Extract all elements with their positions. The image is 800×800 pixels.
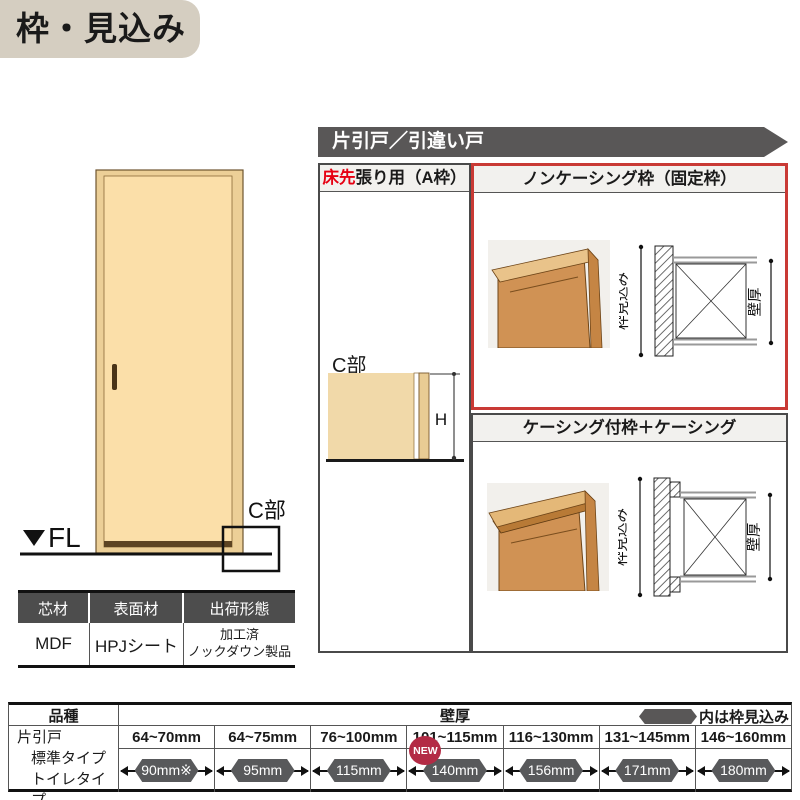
frame-depth-badge: 115mm	[327, 759, 391, 782]
range-header: 64~75mm	[215, 726, 310, 749]
h-label: H	[435, 410, 447, 429]
page: 枠・見込み FL C部 芯材 表面材 出荷形態 MDF HPJシート 加工済	[0, 0, 800, 800]
legend-hexagon-icon	[639, 709, 697, 724]
table-column: 64~70mm 90mm※	[119, 726, 215, 792]
arrow-right-icon	[590, 766, 598, 776]
legend: 内は枠見込み	[639, 706, 789, 727]
section-casing-frame: ケーシング付枠＋ケーシング 枠見込み	[471, 413, 788, 653]
dim-dot	[769, 341, 773, 345]
table-body-row: 片引戸 標準タイプ トイレタイプ 64~70mm 90mm※ 64~75mm	[9, 726, 791, 792]
spec-table-header-row: 芯材 表面材 出荷形態	[18, 593, 295, 623]
arrow-left-icon	[697, 766, 705, 776]
arrow-left-icon	[505, 766, 513, 776]
badge-cell: NEW 140mm	[407, 749, 502, 792]
table-column: 101~115mm NEW 140mm	[407, 726, 503, 792]
door-handle	[112, 364, 117, 390]
range-header: 64~70mm	[119, 726, 214, 749]
dim-dot	[769, 259, 773, 263]
dim-dot	[452, 456, 456, 460]
frame-depth-badge: 156mm	[519, 759, 583, 782]
table-column: 64~75mm 95mm	[215, 726, 311, 792]
casing-cap-bottom	[670, 577, 680, 592]
floor-first-em: 床先	[323, 169, 356, 187]
noncasing-photo	[488, 240, 610, 348]
wall-thickness-label: 壁厚	[746, 523, 763, 552]
door-panel	[104, 176, 232, 547]
wall-header-cell: 壁厚 内は枠見込み	[119, 705, 791, 725]
spec-header-surface: 表面材	[90, 593, 184, 623]
section-floor-first-header: 床先張り用（A枠）	[320, 165, 469, 192]
frame-depth-badge: 95mm	[231, 759, 295, 782]
badge-cell: 115mm	[311, 749, 406, 792]
row-label-line1: 片引戸	[9, 727, 118, 748]
spec-value-surface: HPJシート	[90, 623, 184, 665]
arrow-right-icon	[301, 766, 309, 776]
frame-depth-label: 枠見込み	[619, 272, 631, 330]
frame-depth-badge: 180mm	[711, 759, 775, 782]
dim-dot	[768, 493, 772, 497]
fl-label: FL	[48, 522, 81, 553]
spec-value-shipping-line2: ノックダウン製品	[188, 644, 291, 661]
spec-value-shipping: 加工済 ノックダウン製品	[184, 623, 295, 665]
badge-cell: 90mm※	[119, 749, 214, 792]
arrow-right-icon	[205, 766, 213, 776]
door-section-frame	[419, 373, 429, 459]
legend-text: 内は枠見込み	[699, 706, 789, 727]
row-label-line3: トイレタイプ	[9, 769, 118, 800]
dim-dot	[639, 353, 643, 357]
page-title: 枠・見込み	[0, 0, 200, 58]
spec-header-shipping: 出荷形態	[184, 593, 295, 623]
noncasing-header: ノンケーシング枠（固定枠）	[474, 166, 785, 193]
spec-table: 芯材 表面材 出荷形態 MDF HPJシート 加工済 ノックダウン製品	[18, 590, 295, 668]
arrow-right-icon	[686, 766, 694, 776]
kind-header: 品種	[9, 705, 119, 725]
noncasing-diagram: 枠見込み 壁厚	[619, 231, 784, 361]
badge-cell: 171mm	[600, 749, 695, 792]
badge-cell: 95mm	[215, 749, 310, 792]
dim-dot	[638, 477, 642, 481]
spec-value-shipping-line1: 加工済	[220, 627, 259, 644]
arrow-right-icon	[494, 766, 502, 776]
door-section-gap	[414, 373, 419, 459]
frame-depth-badge: 171mm	[615, 759, 679, 782]
section-noncasing-frame: ノンケーシング枠（固定枠） 枠見込み	[471, 163, 788, 410]
dim-dot	[639, 245, 643, 249]
dim-dot	[638, 593, 642, 597]
fl-triangle-icon	[23, 530, 45, 546]
table-columns: 64~70mm 90mm※ 64~75mm 95mm	[119, 726, 791, 792]
table-top-row: 品種 壁厚 内は枠見込み	[9, 705, 791, 726]
section-floor-first-a-frame: 床先張り用（A枠） C部 H	[318, 163, 471, 653]
range-header: 146~160mm	[696, 726, 791, 749]
table-column: 76~100mm 115mm	[311, 726, 407, 792]
dim-dot	[768, 577, 772, 581]
range-header: 116~130mm	[504, 726, 599, 749]
casing-diagram: 枠見込み 壁厚	[618, 467, 783, 607]
dim-dot	[452, 372, 456, 376]
spec-header-core: 芯材	[18, 593, 90, 623]
c-part-diagram: H	[322, 369, 468, 469]
casing-cap-top	[670, 482, 680, 497]
range-header: 76~100mm	[311, 726, 406, 749]
arrow-right-icon	[782, 766, 790, 776]
table-column: 146~160mm 180mm	[696, 726, 791, 792]
table-column: 131~145mm 171mm	[600, 726, 696, 792]
range-header: 131~145mm	[600, 726, 695, 749]
spec-value-core: MDF	[18, 623, 90, 665]
floor-first-rest: 張り用（A枠）	[356, 169, 467, 187]
arrow-right-icon	[397, 766, 405, 776]
door-bottom-rail	[104, 541, 232, 547]
casing-photo	[487, 483, 609, 591]
table-column: 116~130mm 156mm	[504, 726, 600, 792]
wall-thickness-label: 壁厚	[747, 288, 764, 317]
arrow-left-icon	[120, 766, 128, 776]
spec-table-value-row: MDF HPJシート 加工済 ノックダウン製品	[18, 623, 295, 665]
door-elevation-figure: FL C部	[10, 168, 310, 580]
door-section-fill	[328, 373, 414, 459]
door-type-banner: 片引戸／引違い戸	[318, 127, 788, 157]
frame-hatched-bar	[655, 246, 673, 356]
badge-cell: 180mm	[696, 749, 791, 792]
c-section-label: C部	[248, 498, 286, 523]
arrow-left-icon	[216, 766, 224, 776]
row-label-line2: 標準タイプ	[9, 748, 118, 769]
badge-cell: 156mm	[504, 749, 599, 792]
frame-depth-badge: 90mm※	[135, 759, 199, 782]
arrow-left-icon	[601, 766, 609, 776]
frame-depth-label: 枠見込み	[618, 508, 630, 566]
arrow-left-icon	[408, 766, 416, 776]
arrow-left-icon	[312, 766, 320, 776]
wall-thickness-table: 品種 壁厚 内は枠見込み 片引戸 標準タイプ トイレタイプ 64~70mm	[8, 702, 792, 792]
row-label: 片引戸 標準タイプ トイレタイプ	[9, 726, 119, 792]
casing-header: ケーシング付枠＋ケーシング	[473, 415, 786, 442]
casing-hatched-bar	[654, 478, 670, 596]
wall-header: 壁厚	[440, 705, 470, 726]
